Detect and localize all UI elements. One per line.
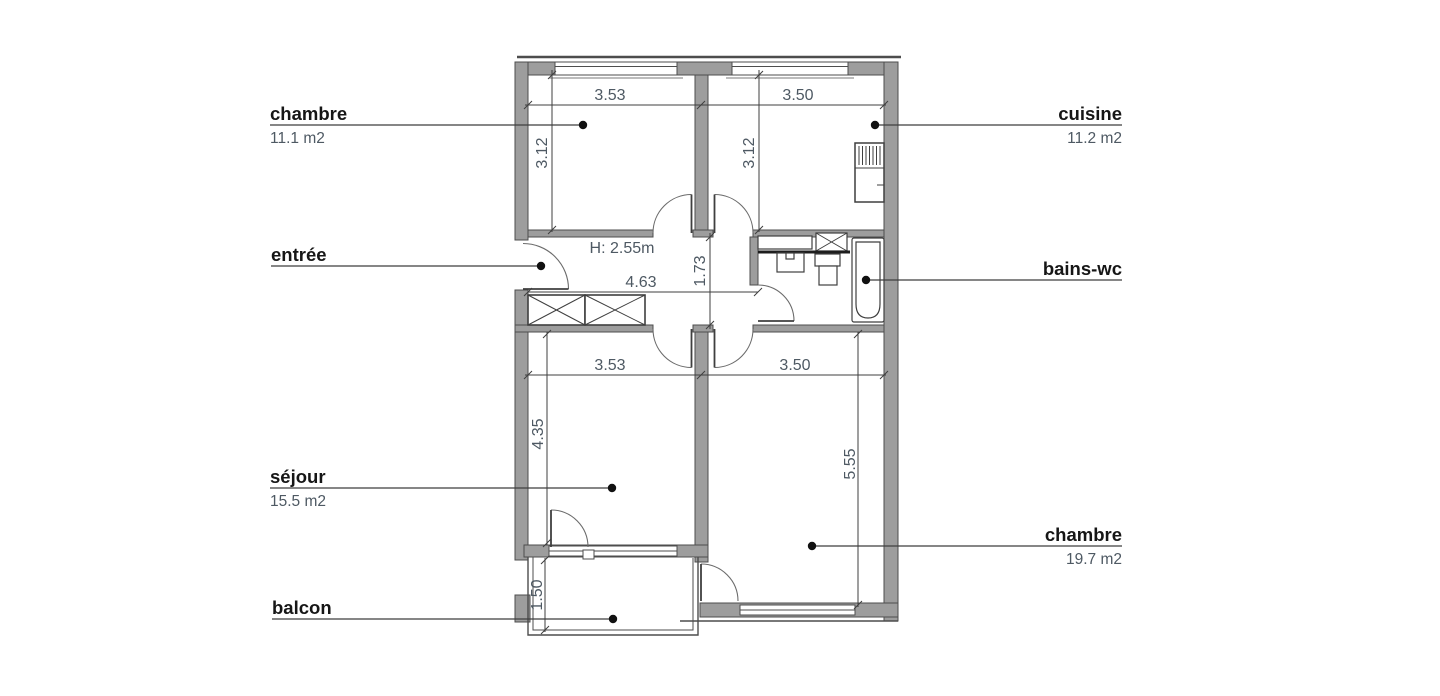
door-bedroom2	[715, 329, 754, 368]
door-living	[653, 329, 692, 368]
leader-dot	[808, 542, 816, 550]
room-label-bath: bains-wc	[822, 258, 1122, 279]
wall-hall-bottom-a	[515, 325, 653, 332]
floor-plan-drawing	[0, 0, 1440, 696]
room-label-kitchen: cuisine	[822, 103, 1122, 124]
door-living-balcony	[551, 510, 588, 547]
wall-bath-left	[750, 237, 758, 285]
dim-living-height: 4.35	[531, 418, 547, 449]
door-bath	[758, 285, 794, 321]
window-bedroom1	[549, 62, 683, 78]
closet-icon	[528, 295, 645, 325]
dim-balcony-depth: 1.50	[530, 579, 546, 610]
dim-hall-width: 4.63	[625, 275, 656, 291]
kitchen-sink-icon	[855, 143, 884, 202]
window-bedroom2	[740, 605, 855, 615]
dim-top-right-width: 3.50	[782, 88, 813, 104]
wall-hall-bottom-c	[753, 325, 884, 332]
leader-dot	[579, 121, 587, 129]
leader-dot	[608, 484, 616, 492]
leader-dot	[537, 262, 545, 270]
dim-top-left-width: 3.53	[594, 88, 625, 104]
dim-bottom-left-width: 3.53	[594, 358, 625, 374]
dim-top-left-height: 3.12	[535, 137, 551, 168]
room-label-bedroom2: chambre	[822, 524, 1122, 545]
wall-middle-lower	[695, 332, 708, 562]
room-label-living: séjour	[270, 466, 326, 487]
door-kitchen	[715, 195, 754, 234]
leader-dot	[609, 615, 617, 623]
room-label-entry: entrée	[271, 244, 327, 265]
room-label-balcony: balcon	[272, 597, 332, 618]
dim-hall-depth: 1.73	[693, 255, 709, 286]
door-bedroom1	[653, 195, 692, 234]
washbasin-icon	[777, 253, 804, 272]
dim-ceiling-height: H: 2.55m	[590, 241, 655, 257]
dim-bottom-right-width: 3.50	[779, 358, 810, 374]
bath-shelf-icon	[758, 233, 850, 252]
door-bedroom2-balcony	[701, 564, 738, 601]
dim-top-right-height: 3.12	[742, 137, 758, 168]
room-label-bedroom1: chambre	[270, 103, 347, 124]
room-area-bedroom2: 19.7 m2	[822, 551, 1122, 569]
wall-left-upper	[515, 62, 528, 240]
room-area-kitchen: 11.2 m2	[822, 130, 1122, 148]
room-area-living: 15.5 m2	[270, 493, 326, 511]
wall-middle-upper	[695, 75, 708, 232]
wall-hall-top-a	[528, 230, 653, 237]
dim-bedroom2-height: 5.55	[843, 448, 859, 479]
floor-plan-page: chambre 11.1 m2 cuisine 11.2 m2 entrée b…	[0, 0, 1440, 696]
balcony-outline	[528, 557, 698, 635]
room-area-bedroom1: 11.1 m2	[270, 130, 325, 148]
window-kitchen	[726, 62, 854, 78]
